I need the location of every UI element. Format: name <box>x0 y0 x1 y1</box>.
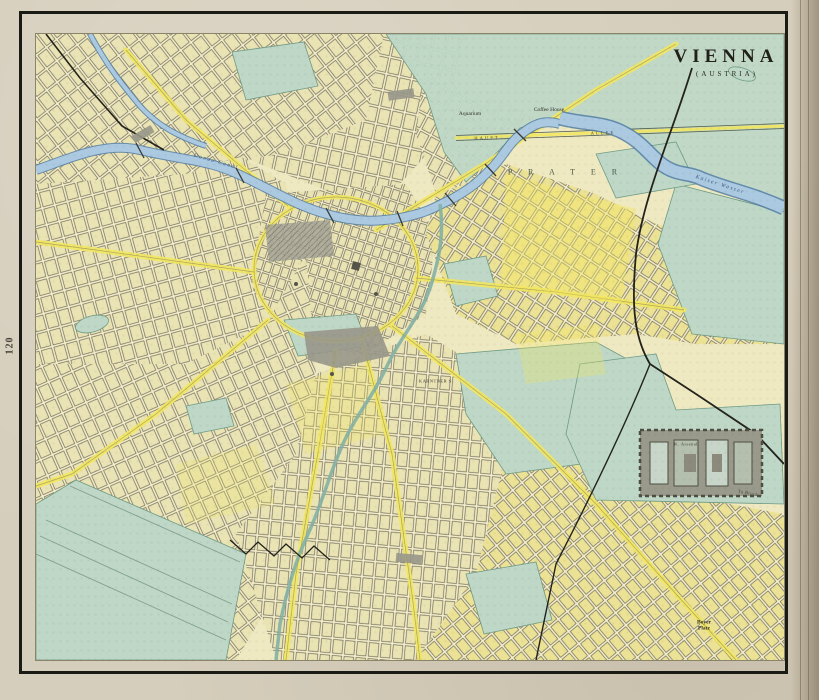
dense-block <box>265 220 334 262</box>
map-canvas <box>36 34 784 660</box>
book-page-edge <box>791 0 819 700</box>
arsenal-complex <box>640 430 762 496</box>
page-edge-line <box>800 0 801 700</box>
page-number: 120 <box>5 337 16 355</box>
page-edge-line <box>808 0 809 700</box>
vienna-map: VIENNA (AUSTRIA) Aquarium Coffee House H… <box>36 34 784 660</box>
